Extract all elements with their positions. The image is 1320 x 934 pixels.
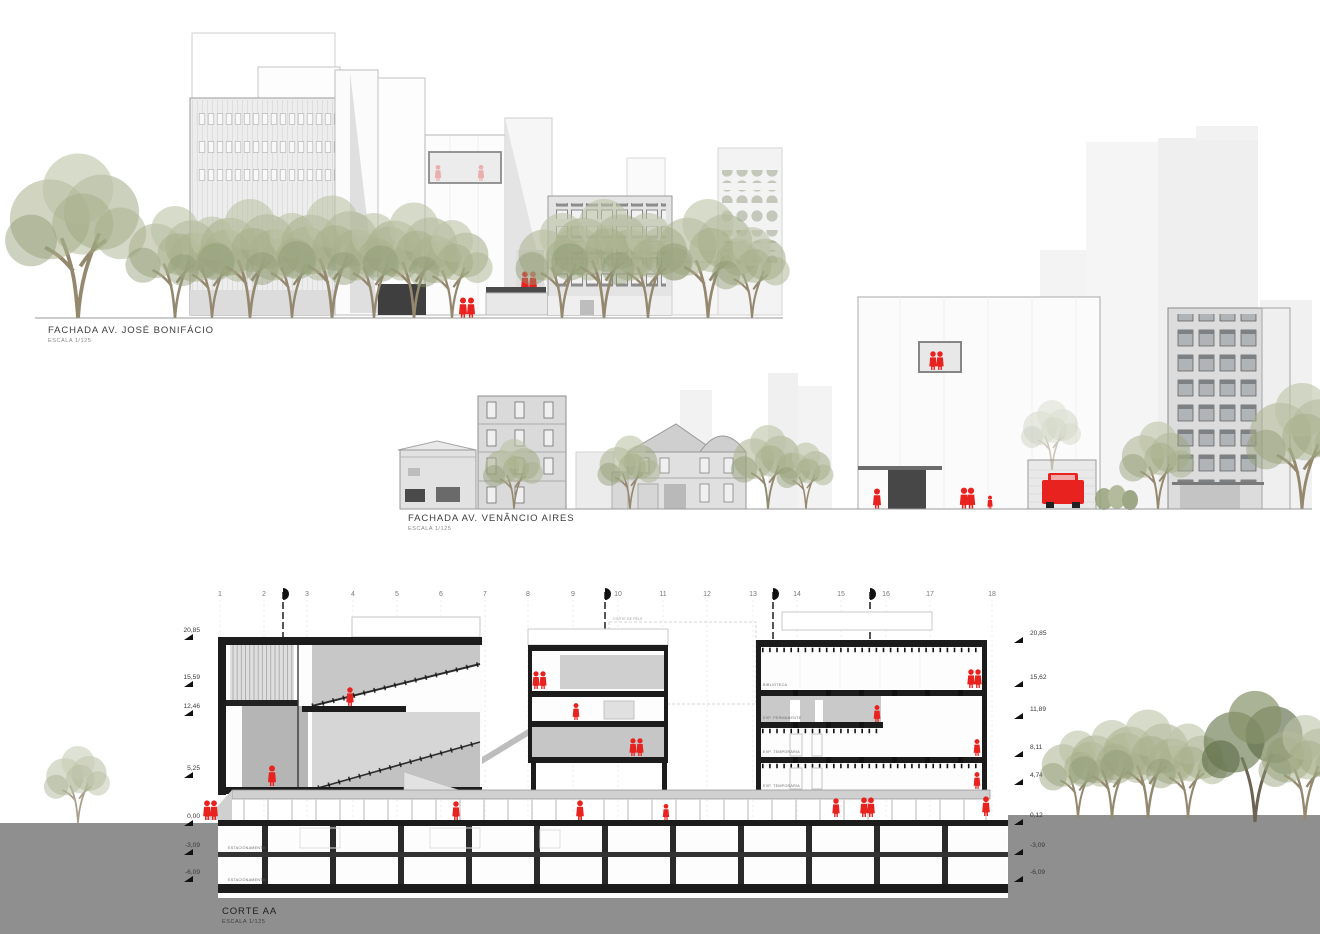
roof-volume bbox=[782, 612, 932, 630]
grid-number: 7 bbox=[483, 591, 487, 598]
room-label-exp-temporaria-1: EXP. TEMPORÁRIA bbox=[763, 750, 800, 754]
building-warehouse bbox=[398, 441, 476, 509]
background-volume bbox=[627, 158, 665, 198]
room-label-exp-temporaria-2: EXP. TEMPORÁRIA bbox=[763, 784, 800, 788]
plaza-figures bbox=[203, 796, 990, 820]
elevation1-title: FACHADA AV. JOSÉ BONIFÁCIO bbox=[48, 325, 214, 336]
level-value: 12,46 bbox=[183, 703, 200, 710]
theater-block bbox=[218, 637, 486, 799]
red-truck bbox=[1042, 473, 1084, 508]
red-figure bbox=[663, 804, 669, 820]
background-tower bbox=[1196, 126, 1258, 140]
section-scale: ESCALA 1/125 bbox=[222, 919, 265, 925]
grid-number: 3 bbox=[305, 591, 309, 598]
grid-number: 11 bbox=[659, 591, 666, 598]
section-title: CORTE AA bbox=[222, 906, 277, 917]
building-project-main bbox=[858, 297, 1100, 509]
tree bbox=[44, 746, 110, 823]
cut-note: CORTE DE PELE bbox=[613, 617, 643, 621]
room-label-estacionamento-2: ESTACIONAMENTO bbox=[228, 878, 266, 882]
level-value: -3,09 bbox=[185, 842, 200, 849]
grid-number: 15 bbox=[837, 591, 845, 598]
cut-flag-icon bbox=[870, 588, 876, 600]
roof-volume bbox=[352, 617, 480, 637]
middle-block bbox=[482, 629, 668, 791]
room-label-exp-permanente: EXP. PERMANENTE bbox=[763, 716, 802, 720]
grid-number: 17 bbox=[926, 591, 934, 598]
cut-flag-icon bbox=[773, 588, 779, 600]
podium bbox=[486, 293, 548, 315]
level-value: -6,09 bbox=[185, 869, 200, 876]
level-value: 11,89 bbox=[1030, 706, 1046, 713]
elevation-jose-bonifacio: FACHADA AV. JOSÉ BONIFÁCIO ESCALA 1/125 bbox=[5, 33, 790, 344]
entrance-dark bbox=[888, 470, 926, 509]
level-value: -3,09 bbox=[1030, 842, 1045, 849]
room-label-estacionamento-1: ESTACIONAMENTO bbox=[228, 846, 266, 850]
room-label-biblioteca: BIBLIOTECA bbox=[763, 683, 788, 687]
red-figure bbox=[452, 801, 459, 820]
grid-number: 5 bbox=[395, 591, 399, 598]
level-value: 20,85 bbox=[1030, 630, 1047, 637]
level-value: 15,59 bbox=[183, 674, 200, 681]
rooftop-volume bbox=[258, 67, 340, 98]
cut-flag-icon bbox=[605, 588, 611, 600]
level-value: -6,09 bbox=[1030, 869, 1045, 876]
sheet-drawing: FACHADA AV. JOSÉ BONIFÁCIO ESCALA 1/125 bbox=[0, 0, 1320, 934]
grid-number: 1 bbox=[218, 591, 222, 598]
elevation1-scale: ESCALA 1/125 bbox=[48, 338, 91, 344]
elevation2-scale: ESCALA 1/125 bbox=[408, 526, 451, 532]
grid-number: 4 bbox=[351, 591, 355, 598]
grid-number: 9 bbox=[571, 591, 575, 598]
cut-flag-icon bbox=[283, 588, 289, 600]
grid-number: 2 bbox=[262, 591, 266, 598]
right-block: BIBLIOTECA EXP. PERMANENTE EXP. TEMPORÁR… bbox=[756, 640, 987, 796]
elevation2-title: FACHADA AV. VENÂNCIO AIRES bbox=[408, 513, 574, 524]
tree bbox=[5, 154, 146, 319]
level-value: 0,12 bbox=[1030, 812, 1043, 819]
architectural-sheet: FACHADA AV. JOSÉ BONIFÁCIO ESCALA 1/125 bbox=[0, 0, 1320, 934]
grid-number: 8 bbox=[526, 591, 530, 598]
ramp bbox=[482, 729, 528, 764]
canopy bbox=[858, 466, 942, 470]
red-figure bbox=[832, 798, 839, 817]
grid-number: 10 bbox=[614, 591, 622, 598]
grid-number: 12 bbox=[703, 591, 711, 598]
grid-number: 14 bbox=[793, 591, 801, 598]
level-markers-left: 20,85 15,59 12,46 5,25 0,00 -3,09 -6,09 bbox=[183, 627, 200, 882]
grid-number: 13 bbox=[749, 591, 757, 598]
level-value: 20,85 bbox=[183, 627, 200, 634]
level-value: 8,11 bbox=[1030, 744, 1043, 751]
window-box bbox=[919, 342, 961, 372]
grid-number: 16 bbox=[882, 591, 890, 598]
podium-step bbox=[486, 287, 546, 293]
grid-number: 6 bbox=[439, 591, 443, 598]
grid-number: 18 bbox=[988, 591, 996, 598]
basement-levels: ESTACIONAMENTO ESTACIONAMENTO bbox=[218, 820, 1008, 893]
red-figure bbox=[860, 797, 868, 817]
level-value: 0,00 bbox=[187, 813, 200, 820]
section-corte-aa: 1 2 3 4 5 6 7 8 9 10 11 12 13 14 15 16 1… bbox=[0, 588, 1320, 934]
section-tree-cluster bbox=[1039, 691, 1320, 822]
level-value: 5,25 bbox=[187, 765, 200, 772]
level-value: 15,62 bbox=[1030, 674, 1047, 681]
